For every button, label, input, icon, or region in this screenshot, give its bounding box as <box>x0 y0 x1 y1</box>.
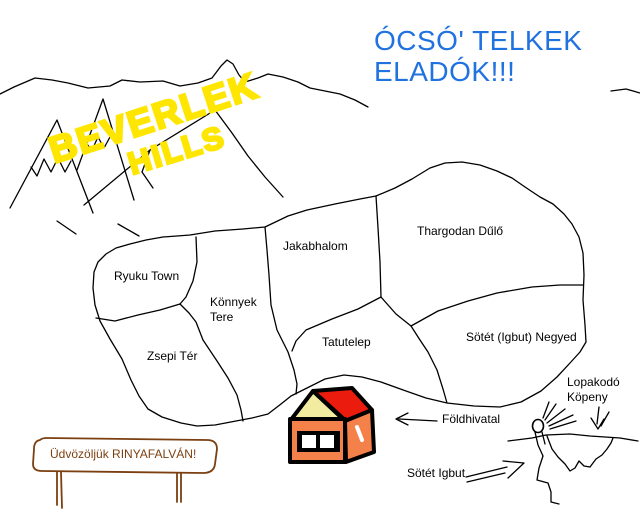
region-label-sotet-igbut-negyed: Sötét (Igbut) Negyed <box>466 330 577 345</box>
region-label-thargodan-dulo: Thargodan Dűlő <box>417 224 503 239</box>
callout-sotet-igbut: Sötét Igbut <box>407 466 465 481</box>
region-label-tatutelep: Tatutelep <box>322 335 371 350</box>
sign-post <box>57 472 62 508</box>
region-label-jakabhalom: Jakabhalom <box>283 239 348 254</box>
paint-drawing-canvas: ÓCSÓ' TELKEK ELADÓK!!! BEVERLEK HILLS Ry… <box>0 0 640 512</box>
callout-foldhivatal: Földhivatal <box>442 412 500 427</box>
cape-top-line <box>508 434 638 441</box>
house-drawing <box>290 388 374 462</box>
house-window-pane <box>302 435 316 448</box>
sign-post <box>177 473 181 502</box>
horizon-line-right-segment <box>611 89 640 93</box>
figure-body <box>535 432 545 456</box>
land-outline <box>93 162 586 426</box>
headline-line1: ÓCSÓ' TELKEK <box>374 25 582 56</box>
foldhivatal-arrow <box>396 413 437 425</box>
left-arrow-icon <box>396 413 437 425</box>
cloaked-figure-drawing <box>508 402 638 504</box>
sotet-igbut-arrow <box>466 461 524 482</box>
headline-line2: ELADÓK!!! <box>374 56 582 87</box>
figure-head <box>533 420 544 433</box>
welcome-sign-text: Üdvözöljük RINYAFALVÁN! <box>50 447 196 461</box>
region-label-konnyek-tere: Könnyek Tere <box>210 295 266 325</box>
region-label-zsepi-ter: Zsepi Tér <box>147 349 197 364</box>
region-label-ryuku-town: Ryuku Town <box>114 269 179 284</box>
headline: ÓCSÓ' TELKEK ELADÓK!!! <box>374 25 582 87</box>
callout-lopakodo-kopeny: Lopakodó Köpeny <box>567 375 629 405</box>
figure-legs <box>537 456 559 504</box>
down-arrow-icon <box>591 407 609 429</box>
mountain-base-line <box>118 224 139 236</box>
house-window-pane <box>320 435 334 448</box>
land-mass-outline <box>93 162 586 426</box>
cape-outline <box>547 436 613 471</box>
mountain-base-line <box>57 221 76 234</box>
right-arrow-icon <box>466 461 524 482</box>
figure-hair-rays <box>543 402 576 429</box>
